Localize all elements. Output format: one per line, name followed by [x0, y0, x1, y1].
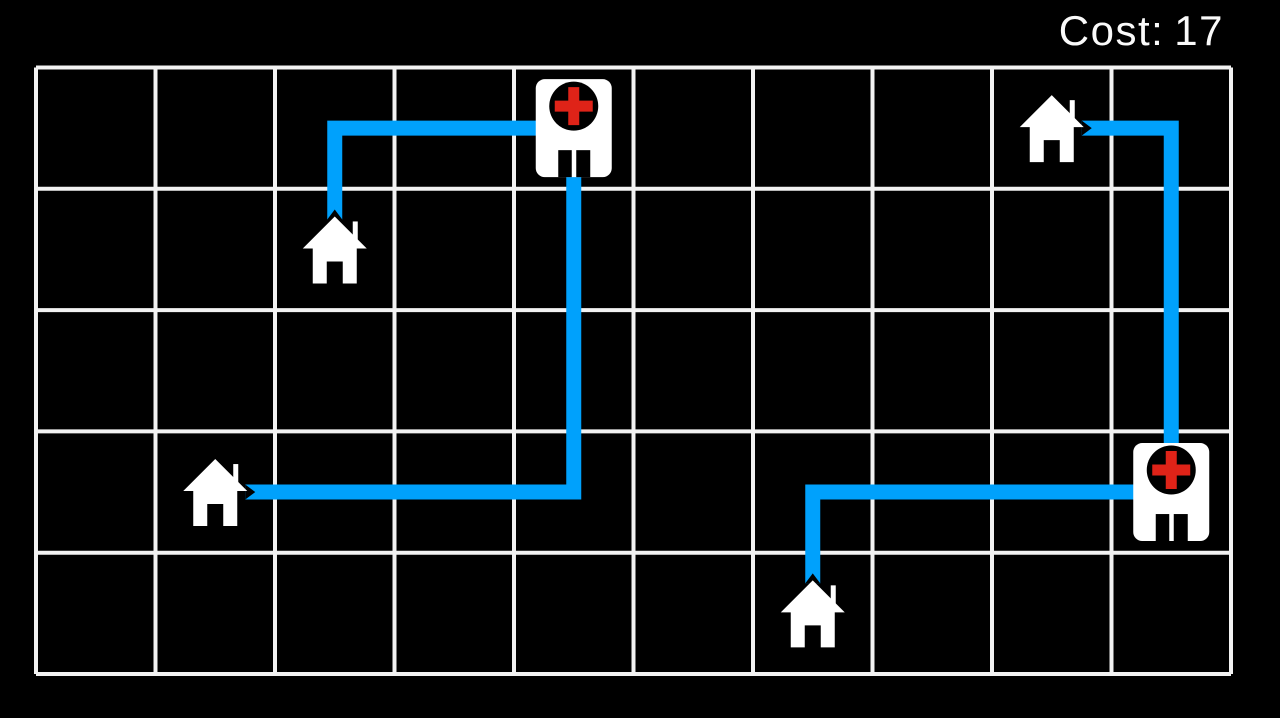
hospital-door-right [1174, 514, 1188, 541]
house-top-right[interactable] [1020, 95, 1084, 162]
house-upper-left[interactable] [303, 216, 367, 283]
route-hospital-right-to-house-top-right[interactable] [1082, 121, 1172, 492]
hospital-right[interactable] [1133, 443, 1209, 541]
house-body [791, 607, 835, 647]
hospital-door-right [576, 150, 590, 177]
route-hospital-top-to-house-middle-left[interactable] [245, 128, 574, 499]
house-middle-left[interactable] [183, 459, 247, 526]
house-body [313, 243, 357, 283]
game-board[interactable] [0, 0, 1280, 718]
route-hospital-right-to-house-bottom-middle[interactable] [805, 492, 1171, 583]
hospital-door-left [1156, 514, 1170, 541]
hospital-top-middle[interactable] [536, 79, 612, 177]
house-bottom-middle[interactable] [781, 580, 845, 647]
house-body [193, 486, 237, 526]
grid-lines [36, 68, 1231, 675]
hospital-door-left [558, 150, 572, 177]
game-stage: Cost:17 [0, 0, 1280, 718]
house-body [1030, 122, 1074, 162]
